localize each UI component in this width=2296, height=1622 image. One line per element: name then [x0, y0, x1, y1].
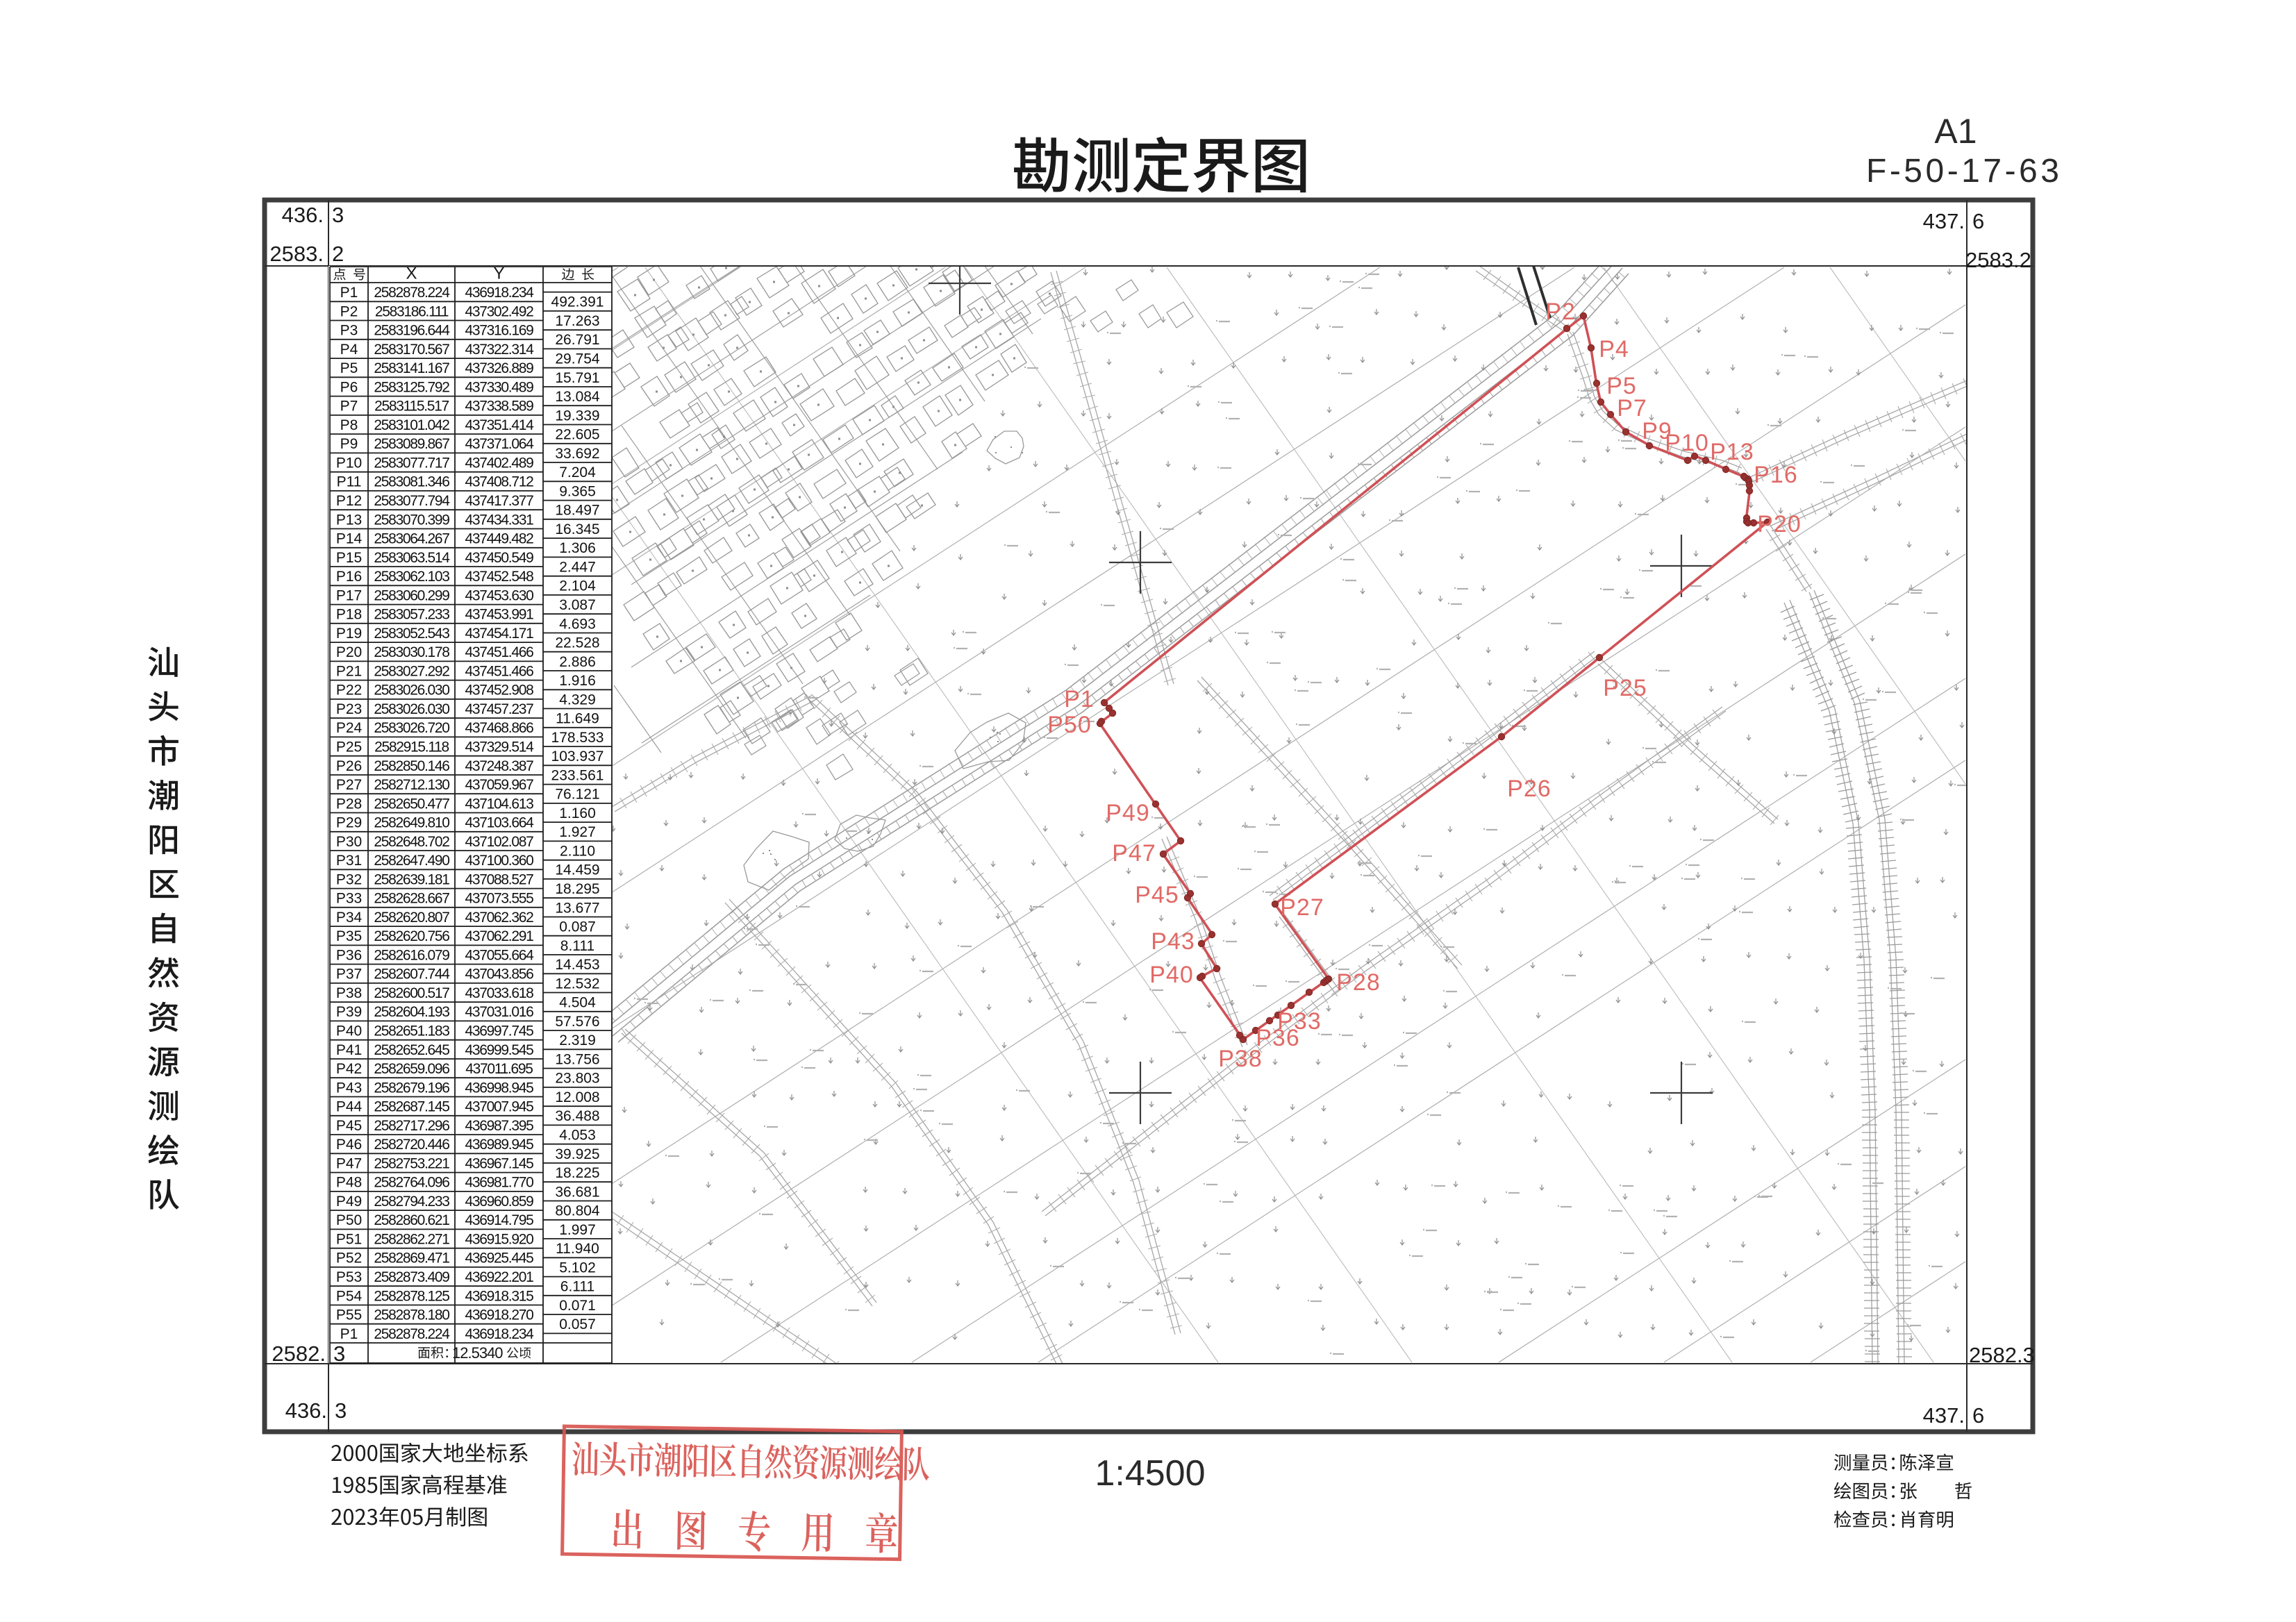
svg-text:2582639.181: 2582639.181 [374, 871, 449, 887]
svg-text:12.5340: 12.5340 [452, 1344, 503, 1362]
svg-text:2582794.233: 2582794.233 [374, 1194, 449, 1210]
svg-text:8.111: 8.111 [560, 938, 594, 954]
svg-text:492.391: 492.391 [551, 294, 604, 310]
svg-text:437031.016: 437031.016 [465, 1004, 534, 1020]
svg-text:P38: P38 [336, 985, 362, 1001]
svg-text:4.329: 4.329 [559, 692, 596, 708]
svg-text:P2: P2 [1545, 299, 1576, 325]
svg-text:2582717.296: 2582717.296 [374, 1118, 449, 1134]
svg-text:P44: P44 [336, 1099, 363, 1115]
svg-text:2582607.744: 2582607.744 [374, 967, 450, 983]
svg-text:1.306: 1.306 [559, 540, 596, 556]
svg-text:P31: P31 [336, 853, 362, 869]
svg-text:2583077.794: 2583077.794 [374, 493, 450, 509]
svg-text:P26: P26 [336, 758, 362, 774]
svg-text:2582764.096: 2582764.096 [374, 1175, 449, 1191]
svg-text:2582604.193: 2582604.193 [374, 1004, 449, 1020]
svg-text:2583060.299: 2583060.299 [374, 587, 449, 603]
svg-text:P36: P36 [336, 947, 362, 963]
svg-text:P39: P39 [336, 1004, 362, 1020]
svg-text:2.104: 2.104 [559, 578, 596, 594]
svg-text:P30: P30 [336, 834, 362, 850]
svg-text:13.756: 13.756 [555, 1051, 599, 1067]
svg-text:P33: P33 [336, 891, 362, 907]
svg-text:2583070.399: 2583070.399 [374, 512, 449, 528]
svg-text:437043.856: 437043.856 [465, 967, 534, 983]
svg-text:2582620.756: 2582620.756 [374, 928, 449, 944]
svg-text:2582687.145: 2582687.145 [374, 1099, 449, 1115]
svg-text:437326.889: 437326.889 [465, 360, 534, 376]
svg-text:18.225: 18.225 [555, 1165, 599, 1181]
svg-text:2582878.180: 2582878.180 [374, 1307, 449, 1323]
svg-text:P28: P28 [1336, 969, 1381, 996]
svg-text:437454.171: 437454.171 [465, 626, 534, 642]
svg-text:2583026.720: 2583026.720 [374, 720, 449, 736]
svg-text:3: 3 [335, 1398, 347, 1423]
svg-text:437408.712: 437408.712 [465, 474, 534, 490]
svg-text:2582869.471: 2582869.471 [374, 1251, 449, 1266]
svg-text:P38: P38 [1218, 1046, 1263, 1072]
svg-text:1:4500: 1:4500 [1095, 1453, 1205, 1494]
svg-text:P1: P1 [1064, 686, 1095, 712]
svg-text:14.453: 14.453 [555, 957, 599, 973]
svg-text:437055.664: 437055.664 [465, 947, 535, 963]
svg-text:P34: P34 [336, 910, 363, 926]
svg-text:2582651.183: 2582651.183 [374, 1023, 449, 1039]
svg-text:437451.466: 437451.466 [465, 644, 534, 660]
svg-text:2583125.792: 2583125.792 [374, 379, 449, 395]
svg-text:P45: P45 [1135, 882, 1179, 908]
svg-text:437248.387: 437248.387 [465, 758, 534, 774]
svg-text:437450.549: 437450.549 [465, 550, 534, 566]
svg-text:P19: P19 [336, 626, 362, 642]
svg-text:X: X [406, 265, 417, 283]
svg-text:103.937: 103.937 [551, 749, 604, 764]
svg-text:437007.945: 437007.945 [465, 1099, 534, 1115]
svg-text:2582616.079: 2582616.079 [374, 947, 449, 963]
svg-text:436999.545: 436999.545 [465, 1042, 534, 1058]
svg-text:P36: P36 [1256, 1025, 1300, 1051]
svg-text:437322.314: 437322.314 [465, 342, 535, 358]
svg-text:437371.064: 437371.064 [465, 436, 535, 452]
svg-text:437302.492: 437302.492 [465, 303, 534, 319]
svg-text:2583170.567: 2583170.567 [374, 342, 449, 358]
svg-text:436.: 436. [282, 203, 324, 227]
svg-text:P16: P16 [336, 569, 362, 585]
svg-text:13.677: 13.677 [555, 900, 599, 916]
svg-text:436960.859: 436960.859 [465, 1194, 534, 1210]
svg-text:437103.664: 437103.664 [465, 815, 535, 831]
svg-text:437468.866: 437468.866 [465, 720, 534, 736]
svg-text:P50: P50 [1047, 712, 1092, 738]
svg-text:436918.234: 436918.234 [465, 285, 535, 301]
svg-text:436918.270: 436918.270 [465, 1307, 534, 1323]
svg-text:P43: P43 [336, 1080, 362, 1096]
svg-text:P13: P13 [1710, 439, 1754, 465]
svg-text:2583115.517: 2583115.517 [374, 399, 449, 415]
svg-text:P20: P20 [336, 644, 362, 660]
svg-text:P48: P48 [336, 1175, 362, 1191]
svg-text:P46: P46 [336, 1137, 362, 1153]
svg-text:P16: P16 [1754, 462, 1798, 488]
svg-text:P2: P2 [340, 303, 358, 319]
svg-text:P9: P9 [340, 436, 358, 452]
svg-text:P53: P53 [336, 1269, 362, 1285]
svg-text:2582.3: 2582.3 [1969, 1343, 2035, 1367]
svg-text:2583052.543: 2583052.543 [374, 626, 449, 642]
svg-text:P40: P40 [1149, 962, 1194, 988]
svg-text:437316.169: 437316.169 [465, 323, 534, 339]
svg-text:P3: P3 [340, 323, 358, 339]
svg-text:437351.414: 437351.414 [465, 417, 535, 433]
svg-text:22.605: 22.605 [555, 427, 599, 443]
svg-text:P40: P40 [336, 1023, 362, 1039]
svg-text:Y: Y [493, 265, 504, 283]
svg-text:2582850.146: 2582850.146 [374, 758, 449, 774]
svg-text:2583141.167: 2583141.167 [374, 360, 449, 376]
svg-text:437451.466: 437451.466 [465, 663, 534, 679]
svg-text:2582648.702: 2582648.702 [374, 834, 449, 850]
svg-text:436914.795: 436914.795 [465, 1212, 534, 1228]
svg-text:2583062.103: 2583062.103 [374, 569, 449, 585]
svg-text:P35: P35 [336, 928, 362, 944]
svg-text:2583101.042: 2583101.042 [374, 417, 449, 433]
svg-text:437088.527: 437088.527 [465, 871, 534, 887]
svg-text:29.754: 29.754 [555, 351, 600, 367]
svg-text:3: 3 [333, 1341, 345, 1366]
svg-text:P26: P26 [1507, 776, 1552, 802]
svg-text:P45: P45 [336, 1118, 362, 1134]
svg-text:436915.920: 436915.920 [465, 1232, 534, 1248]
svg-text:437062.362: 437062.362 [465, 910, 534, 926]
svg-text:2583196.644: 2583196.644 [374, 323, 450, 339]
svg-text:P51: P51 [336, 1232, 362, 1248]
svg-text:36.681: 36.681 [555, 1184, 599, 1200]
svg-text:P42: P42 [336, 1061, 362, 1077]
svg-text:6: 6 [1972, 1403, 1984, 1428]
svg-text:P4: P4 [340, 342, 358, 358]
svg-text:2583026.030: 2583026.030 [374, 683, 449, 699]
svg-text:6: 6 [1972, 209, 1984, 233]
svg-text:0.057: 0.057 [559, 1316, 596, 1332]
svg-text:2582878.224: 2582878.224 [374, 1326, 450, 1342]
svg-text:2582659.096: 2582659.096 [374, 1061, 449, 1077]
svg-text:P32: P32 [336, 871, 362, 887]
svg-text:2583.: 2583. [269, 242, 324, 266]
svg-text:P27: P27 [336, 777, 362, 793]
svg-text:2582650.477: 2582650.477 [374, 796, 449, 812]
svg-text:2582878.125: 2582878.125 [374, 1288, 449, 1304]
svg-text:P13: P13 [336, 512, 362, 528]
svg-text:2583081.346: 2583081.346 [374, 474, 449, 490]
svg-text:437100.360: 437100.360 [465, 853, 534, 869]
svg-text:437434.331: 437434.331 [465, 512, 534, 528]
svg-text:2583057.233: 2583057.233 [374, 607, 449, 623]
svg-text:437.: 437. [1923, 1403, 1965, 1428]
svg-text:436.: 436. [285, 1398, 327, 1423]
svg-text:18.497: 18.497 [555, 503, 599, 519]
svg-text:P25: P25 [1603, 675, 1647, 701]
svg-text:2583.2: 2583.2 [1965, 248, 2031, 272]
svg-text:437453.991: 437453.991 [465, 607, 534, 623]
svg-text:437449.482: 437449.482 [465, 531, 534, 547]
svg-text:19.339: 19.339 [555, 408, 599, 424]
svg-text:14.459: 14.459 [555, 862, 599, 878]
svg-text:437457.237: 437457.237 [465, 701, 534, 717]
svg-text:437104.613: 437104.613 [465, 796, 534, 812]
svg-text:178.533: 178.533 [551, 730, 604, 746]
svg-text:233.561: 233.561 [551, 767, 604, 783]
svg-text:P14: P14 [336, 531, 363, 547]
svg-text:2582649.810: 2582649.810 [374, 815, 449, 831]
svg-text:0.087: 0.087 [559, 919, 596, 935]
svg-text:2583064.267: 2583064.267 [374, 531, 449, 547]
svg-text:437329.514: 437329.514 [465, 739, 535, 755]
svg-text:P4: P4 [1599, 336, 1629, 362]
svg-text:2582860.621: 2582860.621 [374, 1212, 449, 1228]
svg-text:436987.395: 436987.395 [465, 1118, 534, 1134]
svg-text:11.649: 11.649 [556, 711, 599, 727]
svg-text:P29: P29 [336, 815, 362, 831]
svg-text:P41: P41 [336, 1042, 362, 1058]
svg-text:11.940: 11.940 [556, 1241, 599, 1257]
svg-text:9.365: 9.365 [559, 483, 596, 499]
svg-text:P55: P55 [336, 1307, 362, 1323]
svg-text:P21: P21 [336, 663, 362, 679]
svg-text:437417.377: 437417.377 [465, 493, 534, 509]
svg-text:P7: P7 [340, 399, 358, 415]
svg-text:4.504: 4.504 [559, 995, 596, 1011]
svg-text:P23: P23 [336, 701, 362, 717]
svg-text:P10: P10 [1665, 430, 1709, 456]
svg-text:2583089.867: 2583089.867 [374, 436, 449, 452]
svg-text:437059.967: 437059.967 [465, 777, 534, 793]
svg-text:2582720.446: 2582720.446 [374, 1137, 449, 1153]
svg-text:57.576: 57.576 [555, 1014, 599, 1030]
svg-text:P49: P49 [336, 1194, 362, 1210]
svg-text:P43: P43 [1151, 928, 1195, 955]
svg-text:437452.908: 437452.908 [465, 683, 534, 699]
svg-text:1.160: 1.160 [559, 805, 596, 821]
svg-text:7.204: 7.204 [559, 465, 596, 480]
svg-text:P28: P28 [336, 796, 362, 812]
svg-text:3: 3 [332, 203, 344, 227]
svg-text:P25: P25 [336, 739, 362, 755]
svg-text:2582628.667: 2582628.667 [374, 891, 449, 907]
svg-text:P24: P24 [336, 720, 363, 736]
svg-text:36.488: 36.488 [555, 1108, 599, 1124]
svg-text:2582915.118: 2582915.118 [374, 739, 449, 755]
svg-text:437402.489: 437402.489 [465, 455, 534, 471]
svg-text:2.319: 2.319 [559, 1032, 596, 1048]
svg-text:P54: P54 [336, 1288, 363, 1304]
svg-text:13.084: 13.084 [555, 389, 600, 405]
svg-text:2582753.221: 2582753.221 [374, 1155, 449, 1171]
svg-text:437330.489: 437330.489 [465, 379, 534, 395]
svg-text:436925.445: 436925.445 [465, 1251, 534, 1266]
svg-text:2582712.130: 2582712.130 [374, 777, 449, 793]
svg-text:2583077.717: 2583077.717 [374, 455, 449, 471]
svg-text:436918.315: 436918.315 [465, 1288, 534, 1304]
svg-text:P17: P17 [336, 587, 362, 603]
svg-text:P1: P1 [340, 1326, 358, 1342]
svg-text:2583030.178: 2583030.178 [374, 644, 449, 660]
svg-text:15.791: 15.791 [555, 370, 599, 386]
svg-text:436922.201: 436922.201 [465, 1269, 534, 1285]
svg-text:P27: P27 [1280, 894, 1324, 921]
svg-text:P47: P47 [1112, 840, 1156, 867]
svg-text:437.: 437. [1923, 209, 1965, 233]
svg-text:P10: P10 [336, 455, 362, 471]
svg-text:16.345: 16.345 [555, 521, 599, 537]
svg-text:2.110: 2.110 [560, 844, 595, 860]
svg-text:18.295: 18.295 [555, 881, 599, 897]
svg-text:2583026.030: 2583026.030 [374, 701, 449, 717]
svg-text:P22: P22 [336, 683, 362, 699]
svg-text:17.263: 17.263 [555, 313, 599, 329]
svg-text:76.121: 76.121 [555, 787, 599, 803]
svg-text:2.447: 2.447 [559, 560, 596, 576]
svg-text:0.071: 0.071 [559, 1298, 596, 1314]
svg-text:3.087: 3.087 [559, 597, 596, 613]
svg-text:80.804: 80.804 [555, 1203, 600, 1219]
svg-text:P5: P5 [340, 360, 358, 376]
svg-text:437011.695: 437011.695 [465, 1061, 533, 1077]
svg-text:2582679.196: 2582679.196 [374, 1080, 449, 1096]
svg-text:P49: P49 [1106, 800, 1150, 826]
svg-text:437453.630: 437453.630 [465, 587, 534, 603]
svg-text:2582873.409: 2582873.409 [374, 1269, 449, 1285]
svg-text:P47: P47 [336, 1155, 362, 1171]
svg-text:437033.618: 437033.618 [465, 985, 534, 1001]
svg-text:P1: P1 [340, 285, 358, 301]
svg-text:2582620.807: 2582620.807 [374, 910, 449, 926]
svg-text:12.532: 12.532 [555, 976, 599, 992]
svg-text:437073.555: 437073.555 [465, 891, 534, 907]
svg-text:436998.945: 436998.945 [465, 1080, 534, 1096]
svg-text:P18: P18 [336, 607, 362, 623]
svg-text:437338.589: 437338.589 [465, 399, 534, 415]
svg-text:6.111: 6.111 [560, 1279, 594, 1295]
svg-text:26.791: 26.791 [555, 332, 599, 348]
svg-text:2582878.224: 2582878.224 [374, 285, 450, 301]
svg-text:P15: P15 [336, 550, 362, 566]
svg-text:2583063.514: 2583063.514 [374, 550, 450, 566]
svg-text:436981.770: 436981.770 [465, 1175, 534, 1191]
svg-text:F-50-17-63: F-50-17-63 [1866, 153, 2062, 190]
svg-text:436989.945: 436989.945 [465, 1137, 534, 1153]
svg-text:33.692: 33.692 [555, 446, 599, 462]
svg-text:12.008: 12.008 [555, 1089, 599, 1105]
svg-text:2583186.111: 2583186.111 [375, 303, 449, 319]
svg-text:2.886: 2.886 [559, 654, 596, 670]
svg-text:P20: P20 [1757, 511, 1802, 537]
svg-text:2582647.490: 2582647.490 [374, 853, 449, 869]
svg-text:23.803: 23.803 [555, 1071, 599, 1087]
svg-text:39.925: 39.925 [555, 1146, 599, 1162]
svg-text:P11: P11 [337, 474, 362, 490]
svg-text:436967.145: 436967.145 [465, 1155, 534, 1171]
svg-text:4.693: 4.693 [559, 616, 596, 632]
svg-text:437062.291: 437062.291 [465, 928, 534, 944]
svg-text:P12: P12 [336, 493, 362, 509]
svg-text:P37: P37 [336, 967, 362, 983]
svg-text:2582862.271: 2582862.271 [374, 1232, 449, 1248]
svg-text:P6: P6 [340, 379, 358, 395]
svg-text:1.916: 1.916 [559, 673, 596, 689]
svg-text:A1: A1 [1934, 112, 1977, 151]
svg-text:2582.: 2582. [272, 1341, 326, 1366]
svg-text:1.927: 1.927 [559, 824, 596, 840]
svg-text:P52: P52 [336, 1251, 362, 1266]
svg-text:2: 2 [332, 242, 344, 266]
svg-text:437452.548: 437452.548 [465, 569, 534, 585]
svg-text:P50: P50 [336, 1212, 362, 1228]
svg-text:436997.745: 436997.745 [465, 1023, 534, 1039]
svg-text:1.997: 1.997 [559, 1222, 596, 1238]
svg-text:437102.087: 437102.087 [465, 834, 534, 850]
svg-text:22.528: 22.528 [555, 635, 599, 651]
svg-text:P8: P8 [340, 417, 358, 433]
svg-text:2582652.645: 2582652.645 [374, 1042, 449, 1058]
svg-text:5.102: 5.102 [559, 1260, 596, 1276]
svg-text:2583027.292: 2583027.292 [374, 663, 449, 679]
svg-text:4.053: 4.053 [559, 1128, 596, 1144]
svg-text:436918.234: 436918.234 [465, 1326, 535, 1342]
svg-text:2582600.517: 2582600.517 [374, 985, 449, 1001]
